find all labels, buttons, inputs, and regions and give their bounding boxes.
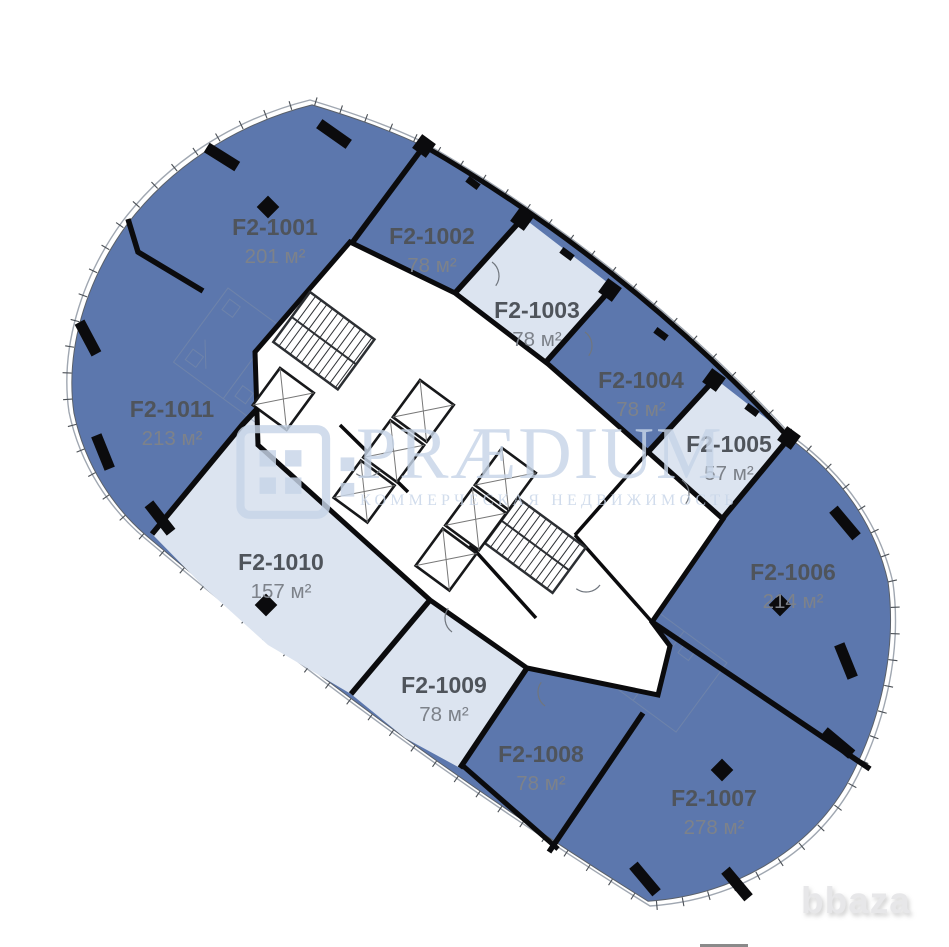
unit-area-label: 78 м²	[407, 254, 457, 277]
unit-id-label: F2-1008	[498, 741, 584, 767]
unit-id-label: F2-1010	[238, 549, 324, 575]
unit-area-label: 78 м²	[419, 703, 469, 726]
unit-id-label: F2-1001	[232, 214, 318, 240]
unit-id-label: F2-1002	[389, 223, 475, 249]
unit-area-label: 157 м²	[251, 580, 312, 603]
unit-id-label: F2-1009	[401, 672, 487, 698]
unit-area-label: 201 м²	[245, 245, 306, 268]
bbaza-watermark: bbaza	[801, 880, 911, 922]
unit-id-label: F2-1006	[750, 559, 836, 585]
unit-area-label: 57 м²	[704, 462, 754, 485]
unit-id-label: F2-1004	[598, 367, 684, 393]
unit-area-label: 78 м²	[512, 328, 562, 351]
unit-id-label: F2-1003	[494, 297, 580, 323]
unit-area-label: 278 м²	[684, 816, 745, 839]
unit-id-label: F2-1007	[671, 785, 757, 811]
unit-area-label: 78 м²	[516, 772, 566, 795]
unit-id-label: F2-1011	[130, 396, 215, 422]
floorplan-canvas: F2-1001201 м²F2-100278 м²F2-100378 м²F2-…	[0, 0, 949, 947]
floor-plan: F2-1001201 м²F2-100278 м²F2-100378 м²F2-…	[0, 0, 949, 947]
unit-area-label: 214 м²	[763, 590, 824, 613]
unit-area-label: 78 м²	[616, 398, 666, 421]
unit-area-label: 213 м²	[142, 427, 203, 450]
unit-id-label: F2-1005	[686, 431, 772, 457]
